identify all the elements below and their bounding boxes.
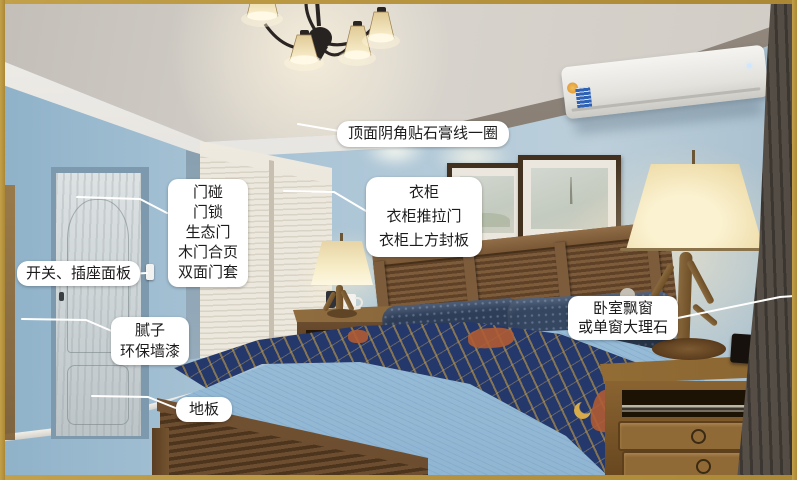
footboard-leg	[152, 428, 169, 480]
door-lock-keyhole	[59, 292, 64, 301]
annotation-switch-socket: 开关、插座面板	[17, 261, 140, 286]
gold-frame-edge	[0, 0, 797, 4]
ac-led-indicator	[746, 63, 752, 69]
drawer-ring-pull	[691, 429, 706, 444]
gold-frame-edge	[792, 0, 797, 480]
gold-frame-edge	[0, 475, 797, 480]
lamp-left-plinth	[327, 309, 357, 318]
annotation-ceiling-cornice: 顶面阴角贴石膏线一圈	[337, 121, 509, 147]
annotated-bedroom-photo: 顶面阴角贴石膏线一圈 门碰 门锁 生态门 木门合页 双面门套 开关、插座面板 腻…	[0, 0, 797, 480]
drawer-ring-pull	[696, 459, 711, 474]
annotation-floor: 地板	[176, 397, 232, 422]
art-tower-sketch	[570, 177, 573, 204]
door-panel	[67, 365, 129, 425]
annotation-wall-paint: 腻子 环保墙漆	[111, 317, 189, 365]
entry-door	[56, 173, 141, 436]
lamp-right-finial	[692, 150, 695, 164]
lamp-right-plinth	[652, 338, 726, 360]
dresser-shelf-books	[622, 390, 764, 417]
light-switch	[146, 264, 154, 280]
wall-corner-shadow	[4, 185, 15, 440]
annotation-wardrobe: 衣柜 衣柜推拉门 衣柜上方封板	[366, 177, 482, 257]
throw-pattern-patch	[348, 330, 368, 343]
lamp-left-finial	[340, 233, 343, 242]
annotation-bay-window: 卧室飘窗 或单窗大理石	[568, 296, 678, 340]
throw-moon-motif	[574, 402, 591, 419]
gold-frame-edge	[0, 0, 5, 480]
annotation-door-hardware: 门碰 门锁 生态门 木门合页 双面门套	[168, 179, 248, 287]
lamp-right-shade-rim	[620, 248, 770, 251]
